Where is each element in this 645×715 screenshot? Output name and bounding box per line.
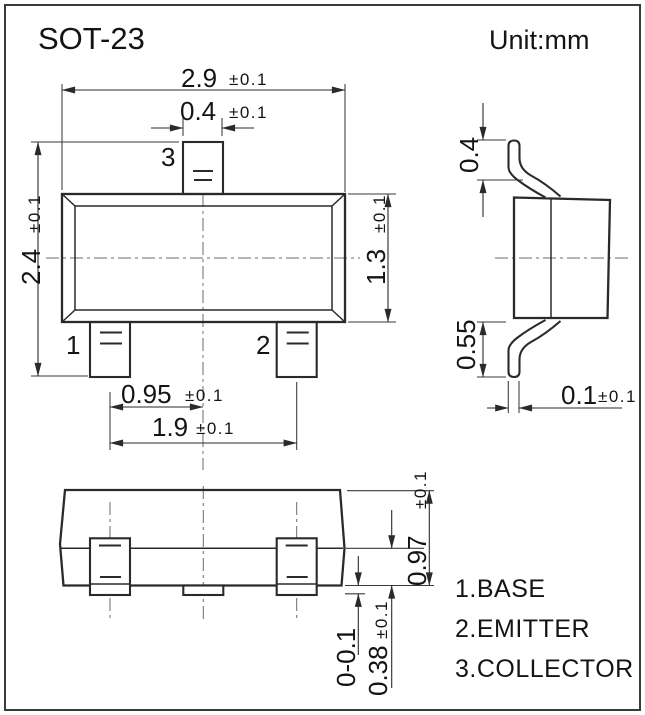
dim-body-width-tol: ±0.1 bbox=[229, 70, 268, 89]
front-view: 0.97 ±0.1 0.38 ±0.1 0-0.1 bbox=[60, 470, 434, 696]
legend-pin2: 2.EMITTER bbox=[455, 615, 590, 643]
dim-body-depth-value: 1.3 bbox=[361, 249, 391, 285]
dim-pin-width-value: 0.4 bbox=[180, 96, 216, 126]
dim-overall-height-tol: ±0.1 bbox=[25, 194, 44, 233]
top-view: 3 1 2 2.9 ±0.1 0.4 ±0.1 2.4 ±0.1 bbox=[16, 63, 396, 470]
dim-lead-tip-value: 0.4 bbox=[454, 137, 484, 173]
unit-label: Unit:mm bbox=[489, 25, 590, 55]
dim-lead-thickness-tol: ±0.1 bbox=[598, 387, 637, 406]
dim-overall-height-value: 2.4 bbox=[16, 249, 46, 285]
dim-lead-height-tol: ±0.1 bbox=[372, 600, 391, 639]
page-title: SOT-23 bbox=[38, 21, 145, 56]
dim-pin-pitch-value: 0.95 bbox=[121, 379, 172, 409]
legend-pin1: 1.BASE bbox=[455, 575, 546, 603]
pin1-pad bbox=[90, 322, 130, 377]
pin2-number: 2 bbox=[256, 330, 270, 360]
dim-lead-height: 0.38 ±0.1 bbox=[363, 510, 393, 696]
front-lead-left bbox=[90, 538, 130, 595]
dim-lead-height-value: 0.38 bbox=[363, 645, 393, 696]
dim-body-width-value: 2.9 bbox=[181, 63, 217, 93]
dim-body-height-tol: ±0.1 bbox=[411, 470, 430, 509]
dim-pin-width-tol: ±0.1 bbox=[229, 103, 268, 122]
dim-pin-width: 0.4 ±0.1 bbox=[151, 96, 268, 136]
pad-bend-marks bbox=[100, 171, 309, 344]
legend-pin3: 3.COLLECTOR bbox=[455, 655, 634, 683]
dim-lead-bend-value: 0.55 bbox=[451, 319, 481, 370]
dim-standoff: 0-0.1 bbox=[331, 556, 361, 687]
dim-lead-bend: 0.55 bbox=[451, 319, 506, 377]
pin1-number: 1 bbox=[66, 330, 80, 360]
dim-body-depth-tol: ±0.1 bbox=[370, 194, 389, 233]
pin3-pad bbox=[183, 142, 223, 194]
dim-lead-thickness: 0.1 ±0.1 bbox=[487, 380, 637, 413]
dim-body-height: 0.97 ±0.1 bbox=[402, 470, 432, 586]
dim-pin-span-tol: ±0.1 bbox=[196, 419, 235, 438]
sot23-package-drawing: SOT-23 Unit:mm 3 1 2 2.9 ±0.1 bbox=[0, 0, 645, 715]
dim-lead-thickness-value: 0.1 bbox=[561, 380, 597, 410]
dim-pin-pitch-tol: ±0.1 bbox=[185, 386, 224, 405]
side-view: 0.4 0.55 0.1 ±0.1 bbox=[451, 103, 637, 413]
front-lead-right bbox=[277, 538, 317, 595]
front-center-tab bbox=[183, 586, 223, 596]
dim-body-height-value: 0.97 bbox=[402, 535, 432, 586]
dim-pin-span-value: 1.9 bbox=[152, 412, 188, 442]
dim-body-depth: 1.3 ±0.1 bbox=[348, 194, 396, 322]
pin-legend: 1.BASE 2.EMITTER 3.COLLECTOR bbox=[455, 575, 634, 683]
pin2-pad bbox=[277, 322, 317, 377]
drawing-canvas: SOT-23 Unit:mm 3 1 2 2.9 ±0.1 bbox=[0, 0, 645, 715]
front-centerlines bbox=[110, 486, 297, 622]
pin3-number: 3 bbox=[161, 142, 175, 172]
dim-standoff-value: 0-0.1 bbox=[331, 628, 361, 687]
